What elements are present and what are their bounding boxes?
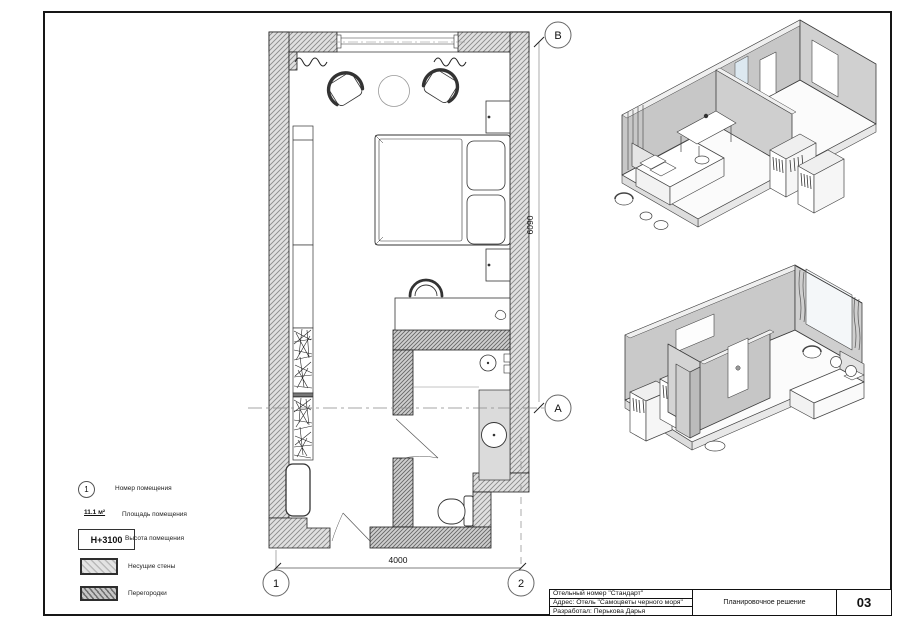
axonometric-view-1 bbox=[615, 20, 876, 230]
luggage-bench bbox=[286, 464, 310, 516]
partition-swatch bbox=[80, 586, 118, 601]
armchair-left bbox=[322, 66, 366, 109]
project-address: Адрес: Отель "Самоцветы черного моря" bbox=[550, 598, 692, 607]
dim-6090: 6090 bbox=[525, 215, 535, 234]
area-label: Площадь помещения bbox=[122, 511, 187, 518]
bathroom-door bbox=[396, 419, 438, 459]
axis-b: B bbox=[554, 30, 561, 42]
title-block-info: Отельный номер "Стандарт" Адрес: Отель "… bbox=[550, 590, 693, 615]
room-number-symbol: 1 bbox=[78, 481, 95, 498]
sheet-number: 03 bbox=[837, 590, 891, 615]
axonometric-view-2 bbox=[625, 265, 864, 451]
drawing-sheet: 4000 6090 1 2 B A bbox=[0, 0, 900, 635]
project-name: Отельный номер "Стандарт" bbox=[550, 590, 692, 598]
axis-1: 1 bbox=[273, 578, 279, 590]
partition-label: Перегородки bbox=[128, 590, 167, 597]
project-author: Разработал: Перькова Дарья bbox=[550, 606, 692, 615]
armchair-right bbox=[420, 63, 464, 106]
load-bearing-label: Несущие стены bbox=[128, 563, 175, 570]
desk-chair bbox=[410, 280, 442, 296]
desk bbox=[395, 298, 510, 330]
room-number-label: Номер помещения bbox=[115, 485, 172, 492]
axonometric-views bbox=[580, 10, 900, 590]
wardrobe-column bbox=[293, 126, 313, 460]
curtain-symbols bbox=[295, 58, 466, 66]
entry-door bbox=[332, 513, 370, 541]
window bbox=[330, 32, 465, 52]
drawing-title: Планировочное решение bbox=[693, 590, 837, 615]
bed bbox=[375, 135, 510, 245]
toilet bbox=[438, 496, 473, 526]
area-symbol: 11.1 м² bbox=[84, 509, 105, 516]
side-table bbox=[379, 76, 410, 107]
load-bearing-swatch bbox=[80, 558, 118, 575]
shower bbox=[413, 354, 510, 387]
floor-plan: 4000 6090 1 2 B A bbox=[244, 0, 580, 600]
dim-4000: 4000 bbox=[389, 555, 408, 565]
height-label: Высота помещения bbox=[125, 535, 184, 542]
dimension-bottom: 4000 bbox=[271, 555, 526, 573]
vanity-sink bbox=[479, 390, 510, 480]
axis-2: 2 bbox=[518, 578, 524, 590]
axis-a: A bbox=[554, 403, 562, 415]
title-block: Отельный номер "Стандарт" Адрес: Отель "… bbox=[549, 589, 892, 616]
